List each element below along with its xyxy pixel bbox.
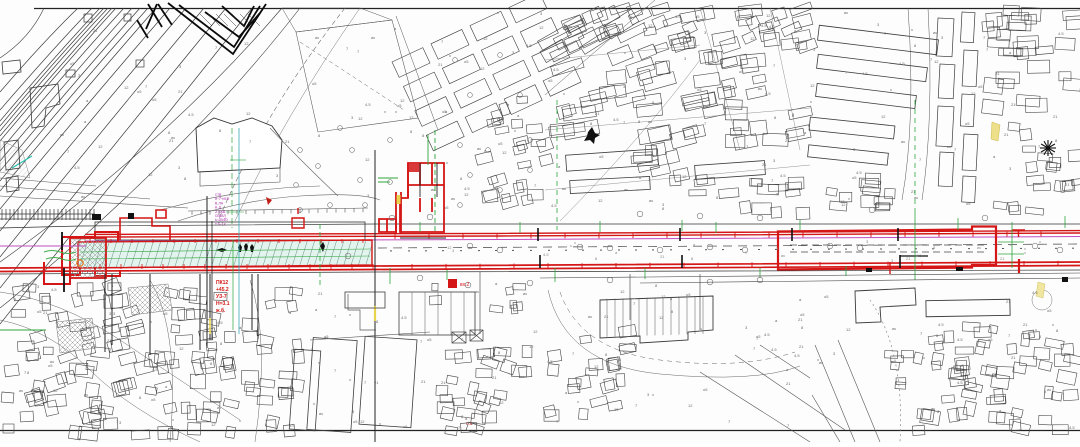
svg-text:4.5: 4.5 bbox=[1069, 425, 1075, 430]
svg-text:о5: о5 bbox=[397, 103, 402, 108]
svg-text:12: 12 bbox=[244, 41, 249, 46]
svg-text:21: 21 bbox=[785, 138, 790, 143]
svg-text:12: 12 bbox=[971, 91, 976, 96]
svg-text:12: 12 bbox=[598, 198, 603, 203]
svg-text:12: 12 bbox=[480, 66, 485, 71]
svg-text:о5: о5 bbox=[684, 107, 689, 112]
svg-text:21: 21 bbox=[906, 256, 911, 261]
svg-text:ик: ик bbox=[217, 405, 221, 410]
svg-text:4.5: 4.5 bbox=[74, 165, 80, 170]
svg-text:ик: ик bbox=[933, 30, 937, 35]
svg-text:12: 12 bbox=[499, 400, 504, 405]
svg-text:x: x bbox=[624, 50, 626, 55]
svg-text:x: x bbox=[172, 417, 174, 422]
svg-text:21: 21 bbox=[799, 344, 804, 349]
svg-text:о5: о5 bbox=[403, 424, 408, 429]
svg-text:ик: ик bbox=[947, 144, 951, 149]
svg-text:4.5: 4.5 bbox=[289, 423, 295, 428]
svg-text:x: x bbox=[484, 148, 486, 153]
svg-text:вх.2: вх.2 bbox=[460, 282, 470, 288]
svg-text:о5: о5 bbox=[852, 175, 857, 180]
svg-text:о5: о5 bbox=[70, 61, 75, 66]
svg-text:4.5: 4.5 bbox=[543, 252, 549, 257]
svg-text:12: 12 bbox=[750, 36, 755, 41]
svg-text:о5: о5 bbox=[988, 337, 993, 342]
svg-text:4.5: 4.5 bbox=[551, 203, 557, 208]
svg-text:ик: ик bbox=[562, 186, 566, 191]
svg-text:4.5: 4.5 bbox=[675, 14, 681, 19]
svg-text:4.5: 4.5 bbox=[553, 67, 559, 72]
svg-text:о5: о5 bbox=[48, 363, 53, 368]
svg-text:ик: ик bbox=[781, 253, 785, 258]
svg-text:x: x bbox=[574, 240, 576, 245]
svg-text:о5: о5 bbox=[91, 335, 96, 340]
svg-text:4.5: 4.5 bbox=[365, 102, 371, 107]
svg-text:12: 12 bbox=[659, 315, 664, 320]
svg-text:x: x bbox=[349, 377, 351, 382]
svg-text:ж.б.: ж.б. bbox=[215, 307, 226, 314]
svg-text:12: 12 bbox=[53, 388, 58, 393]
svg-text:о5: о5 bbox=[697, 87, 702, 92]
svg-text:ик: ик bbox=[977, 245, 981, 250]
svg-text:4.5: 4.5 bbox=[769, 24, 775, 29]
svg-text:ик: ик bbox=[477, 146, 481, 151]
svg-text:x: x bbox=[563, 91, 565, 96]
svg-text:12: 12 bbox=[614, 407, 619, 412]
svg-text:ик: ик bbox=[901, 139, 905, 144]
svg-text:x: x bbox=[379, 421, 381, 426]
svg-text:x: x bbox=[318, 360, 320, 365]
svg-text:4.5: 4.5 bbox=[188, 112, 194, 117]
svg-text:12: 12 bbox=[365, 157, 370, 162]
svg-text:21: 21 bbox=[1065, 182, 1070, 187]
svg-text:21: 21 bbox=[492, 375, 497, 380]
svg-text:21: 21 bbox=[911, 189, 916, 194]
svg-text:21: 21 bbox=[178, 89, 183, 94]
svg-text:21: 21 bbox=[1006, 299, 1011, 304]
svg-text:12: 12 bbox=[539, 25, 544, 30]
svg-text:4.5: 4.5 bbox=[899, 61, 905, 66]
svg-text:ик: ик bbox=[81, 194, 85, 199]
svg-text:о5: о5 bbox=[312, 81, 317, 86]
svg-text:о5: о5 bbox=[498, 141, 503, 146]
svg-text:21: 21 bbox=[1000, 256, 1005, 261]
svg-text:4.5: 4.5 bbox=[401, 315, 407, 320]
svg-text:4.5: 4.5 bbox=[613, 117, 619, 122]
svg-text:12: 12 bbox=[881, 114, 886, 119]
svg-text:4.5: 4.5 bbox=[957, 337, 963, 342]
svg-text:4.5: 4.5 bbox=[957, 380, 963, 385]
svg-text:21: 21 bbox=[43, 310, 48, 315]
svg-text:4.5: 4.5 bbox=[916, 253, 922, 258]
svg-text:21: 21 bbox=[595, 111, 600, 116]
svg-text:о5: о5 bbox=[978, 84, 983, 89]
svg-text:21: 21 bbox=[762, 162, 767, 167]
svg-text:4.5: 4.5 bbox=[547, 359, 553, 364]
svg-text:21: 21 bbox=[798, 317, 803, 322]
svg-text:о5: о5 bbox=[599, 154, 604, 159]
svg-text:ик: ик bbox=[624, 187, 628, 192]
svg-text:12: 12 bbox=[810, 83, 815, 88]
svg-text:4.5: 4.5 bbox=[938, 322, 944, 327]
svg-text:ПК12: ПК12 bbox=[216, 280, 228, 286]
svg-text:x: x bbox=[1024, 246, 1026, 251]
svg-text:x: x bbox=[577, 399, 579, 404]
svg-text:о5: о5 bbox=[966, 201, 971, 206]
svg-text:x: x bbox=[395, 109, 397, 114]
svg-text:x: x bbox=[239, 418, 241, 423]
svg-text:12: 12 bbox=[464, 192, 469, 197]
svg-text:12: 12 bbox=[934, 59, 939, 64]
svg-text:12: 12 bbox=[124, 85, 129, 90]
svg-text:12: 12 bbox=[533, 329, 538, 334]
svg-text:x: x bbox=[514, 128, 516, 133]
svg-text:о5: о5 bbox=[703, 387, 708, 392]
svg-text:21: 21 bbox=[421, 379, 426, 384]
svg-text:x: x bbox=[810, 99, 812, 104]
svg-text:4.5: 4.5 bbox=[1058, 31, 1064, 36]
svg-text:12: 12 bbox=[841, 202, 846, 207]
svg-text:ик: ик bbox=[648, 119, 652, 124]
svg-text:4.5: 4.5 bbox=[761, 23, 767, 28]
svg-text:21: 21 bbox=[604, 314, 609, 319]
svg-text:ик: ик bbox=[315, 35, 319, 40]
svg-text:о5: о5 bbox=[163, 311, 168, 316]
svg-text:12: 12 bbox=[661, 294, 666, 299]
svg-text:x: x bbox=[446, 160, 448, 165]
svg-text:о5: о5 bbox=[1047, 308, 1052, 313]
svg-text:12: 12 bbox=[648, 23, 653, 28]
svg-text:12: 12 bbox=[502, 150, 507, 155]
svg-text:4.5: 4.5 bbox=[765, 91, 771, 96]
svg-text:12: 12 bbox=[148, 172, 153, 177]
svg-text:12: 12 bbox=[766, 13, 771, 18]
svg-text:4.5: 4.5 bbox=[856, 170, 862, 175]
svg-text:x: x bbox=[1052, 322, 1054, 327]
svg-text:о5: о5 bbox=[353, 419, 358, 424]
svg-text:4.5: 4.5 bbox=[1032, 290, 1038, 295]
svg-text:4.5: 4.5 bbox=[217, 320, 223, 325]
svg-text:12: 12 bbox=[246, 111, 251, 116]
svg-text:12: 12 bbox=[400, 98, 405, 103]
svg-text:x: x bbox=[150, 319, 152, 324]
svg-text:ик: ик bbox=[319, 411, 323, 416]
svg-text:12: 12 bbox=[688, 403, 693, 408]
svg-text:4.5: 4.5 bbox=[51, 287, 57, 292]
svg-text:12: 12 bbox=[620, 289, 625, 294]
svg-text:21: 21 bbox=[285, 139, 290, 144]
svg-text:x: x bbox=[384, 109, 386, 114]
svg-text:21: 21 bbox=[786, 381, 791, 386]
svg-text:о5: о5 bbox=[965, 121, 970, 126]
svg-text:21: 21 bbox=[1053, 114, 1058, 119]
svg-text:x: x bbox=[652, 392, 654, 397]
svg-text:ик: ик bbox=[819, 360, 823, 365]
svg-text:x: x bbox=[570, 243, 572, 248]
svg-text:4.5: 4.5 bbox=[464, 186, 470, 191]
svg-text:ик: ик bbox=[758, 86, 762, 91]
svg-text:x: x bbox=[1035, 327, 1037, 332]
svg-text:о5: о5 bbox=[324, 334, 329, 339]
svg-text:12: 12 bbox=[846, 327, 851, 332]
svg-text:ик: ик bbox=[844, 10, 848, 15]
svg-text:x: x bbox=[497, 10, 499, 15]
svg-text:12: 12 bbox=[409, 115, 414, 120]
svg-text:12: 12 bbox=[358, 116, 363, 121]
svg-text:12: 12 bbox=[617, 31, 622, 36]
svg-text:ик: ик bbox=[371, 35, 375, 40]
svg-text:УЗ-7: УЗ-7 bbox=[216, 294, 227, 300]
svg-text:21: 21 bbox=[1004, 132, 1009, 137]
svg-text:x: x bbox=[349, 312, 351, 317]
svg-text:о5: о5 bbox=[151, 397, 156, 402]
svg-text:12: 12 bbox=[682, 174, 687, 179]
svg-text:21: 21 bbox=[1011, 355, 1016, 360]
svg-text:о5: о5 bbox=[137, 89, 142, 94]
svg-text:ик: ик bbox=[451, 196, 455, 201]
svg-text:4.5: 4.5 bbox=[526, 43, 532, 48]
svg-text:12: 12 bbox=[179, 346, 184, 351]
svg-text:x: x bbox=[471, 421, 473, 426]
svg-text:21: 21 bbox=[1011, 102, 1016, 107]
svg-text:ик: ик bbox=[19, 388, 23, 393]
svg-text:ик: ик bbox=[475, 289, 479, 294]
svg-text:x: x bbox=[848, 196, 850, 201]
svg-text:о5: о5 bbox=[824, 294, 829, 299]
svg-text:21: 21 bbox=[995, 71, 1000, 76]
svg-text:12: 12 bbox=[211, 422, 216, 427]
svg-text:ик: ик bbox=[588, 314, 592, 319]
svg-text:x: x bbox=[890, 87, 892, 92]
svg-text:12: 12 bbox=[98, 144, 103, 149]
svg-text:21: 21 bbox=[93, 28, 98, 33]
svg-text:+45.2: +45.2 bbox=[216, 287, 229, 293]
svg-text:4.5: 4.5 bbox=[764, 332, 770, 337]
svg-text:о5: о5 bbox=[686, 292, 691, 297]
svg-text:о5: о5 bbox=[427, 337, 432, 342]
svg-text:4.5: 4.5 bbox=[780, 173, 786, 178]
svg-text:21: 21 bbox=[441, 380, 446, 385]
svg-text:ик: ик bbox=[1047, 387, 1051, 392]
svg-text:ик: ик bbox=[523, 291, 527, 296]
svg-text:12: 12 bbox=[483, 36, 488, 41]
svg-text:4.5: 4.5 bbox=[862, 71, 868, 76]
svg-text:4.5: 4.5 bbox=[152, 367, 158, 372]
svg-text:о5: о5 bbox=[152, 97, 157, 102]
svg-text:о5: о5 bbox=[37, 309, 42, 314]
svg-text:x: x bbox=[1039, 239, 1041, 244]
svg-text:x: x bbox=[960, 373, 962, 378]
svg-text:x: x bbox=[313, 401, 315, 406]
svg-text:21: 21 bbox=[1023, 322, 1028, 327]
svg-text:ик: ик bbox=[568, 24, 572, 29]
svg-text:ик: ик bbox=[84, 392, 88, 397]
svg-text:ик: ик bbox=[892, 326, 896, 331]
svg-text:4.5: 4.5 bbox=[771, 347, 777, 352]
svg-text:x: x bbox=[923, 355, 925, 360]
svg-text:о5: о5 bbox=[695, 14, 700, 19]
svg-text:4.5: 4.5 bbox=[794, 353, 800, 358]
svg-text:x: x bbox=[911, 27, 913, 32]
svg-text:ик: ик bbox=[60, 132, 64, 137]
svg-text:x: x bbox=[449, 53, 451, 58]
svg-text:о5: о5 bbox=[464, 59, 469, 64]
svg-text:12: 12 bbox=[360, 419, 365, 424]
svg-text:ик: ик bbox=[931, 406, 935, 411]
svg-text:12: 12 bbox=[529, 344, 534, 349]
svg-text:21: 21 bbox=[660, 254, 665, 259]
svg-text:12: 12 bbox=[594, 364, 599, 369]
svg-text:21: 21 bbox=[318, 291, 323, 296]
svg-text:21: 21 bbox=[438, 62, 443, 67]
svg-text:о5: о5 bbox=[739, 69, 744, 74]
svg-text:21: 21 bbox=[374, 380, 379, 385]
svg-text:Н=3.1: Н=3.1 bbox=[216, 301, 230, 307]
svg-text:ик: ик bbox=[649, 198, 653, 203]
svg-text:21: 21 bbox=[107, 338, 112, 343]
svg-text:о5: о5 bbox=[548, 78, 553, 83]
svg-text:ик: ик bbox=[171, 135, 175, 140]
